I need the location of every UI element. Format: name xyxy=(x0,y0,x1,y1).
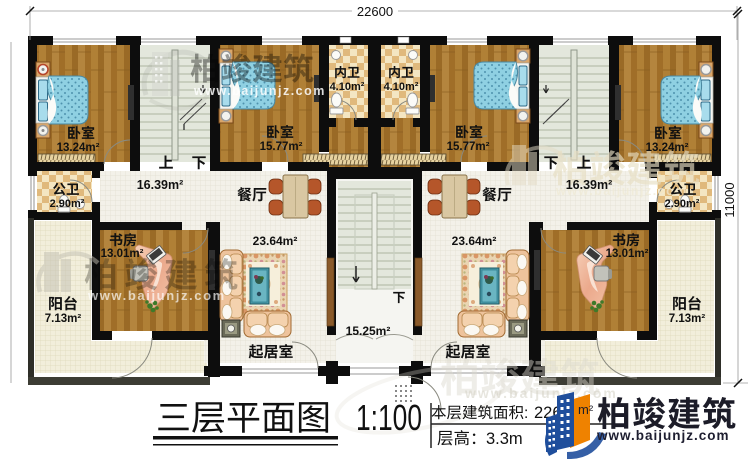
svg-text:16.39m²: 16.39m² xyxy=(566,178,613,192)
svg-text:13.01m²: 13.01m² xyxy=(606,248,649,260)
svg-text:2.90m²: 2.90m² xyxy=(50,198,85,210)
svg-text:www.baijunjz.com: www.baijunjz.com xyxy=(464,385,618,401)
svg-text:15.77m²: 15.77m² xyxy=(447,141,490,153)
svg-text:www.baijunjz.com: www.baijunjz.com xyxy=(193,84,326,98)
svg-text:4.10m²: 4.10m² xyxy=(330,81,365,93)
svg-text:23.64m²: 23.64m² xyxy=(452,234,497,248)
svg-text:11000: 11000 xyxy=(722,182,737,217)
svg-text:m²: m² xyxy=(578,402,594,417)
svg-text:13.24m²: 13.24m² xyxy=(57,142,100,154)
svg-text:23.64m²: 23.64m² xyxy=(253,234,298,248)
svg-text:www.baijunjz.com: www.baijunjz.com xyxy=(87,288,226,303)
svg-text:15.77m²: 15.77m² xyxy=(260,141,303,153)
svg-text:22600: 22600 xyxy=(357,4,393,19)
svg-text:15.25m²: 15.25m² xyxy=(346,324,391,338)
svg-text:13.24m²: 13.24m² xyxy=(646,142,689,154)
svg-text:13.01m²: 13.01m² xyxy=(101,248,144,260)
svg-text:7.13m²: 7.13m² xyxy=(45,313,82,325)
svg-text:16.39m²: 16.39m² xyxy=(137,178,184,192)
svg-text:2.90m²: 2.90m² xyxy=(665,198,700,210)
svg-text:4.10m²: 4.10m² xyxy=(384,81,419,93)
svg-text::: : xyxy=(524,405,528,422)
svg-text:1:100: 1:100 xyxy=(356,397,422,438)
svg-text:7.13m²: 7.13m² xyxy=(669,313,706,325)
svg-text:3.3m: 3.3m xyxy=(486,430,523,448)
svg-text:www.baijunjz.com: www.baijunjz.com xyxy=(596,428,730,443)
